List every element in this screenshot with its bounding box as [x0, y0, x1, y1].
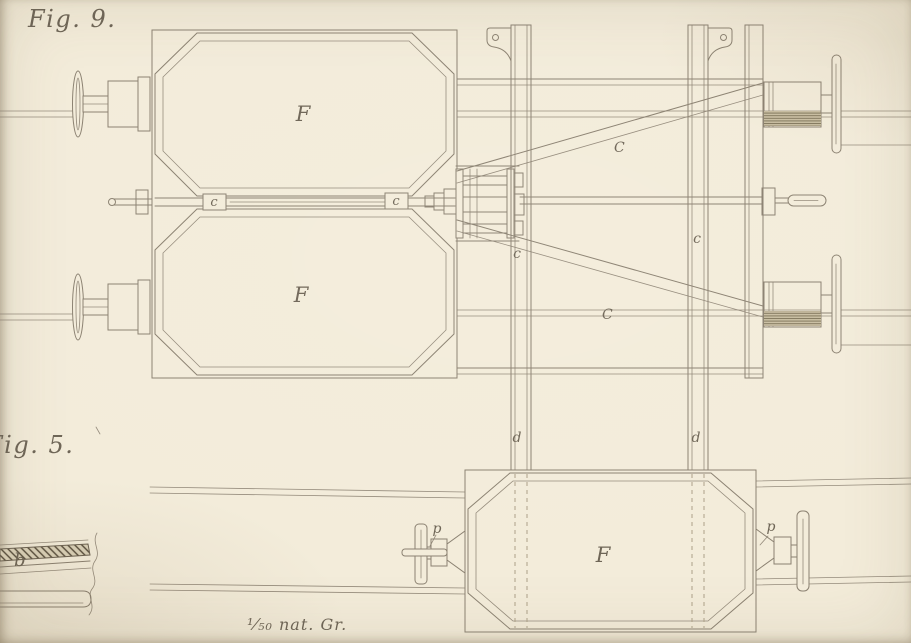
brace-upper-2: [457, 95, 763, 183]
spool-disc: [832, 55, 841, 153]
post-left-d-label: d: [513, 430, 522, 446]
post-right: [688, 25, 708, 470]
post-right-bracket: [708, 28, 732, 61]
lower-wagon-frame: F: [465, 470, 756, 632]
spool-shaft: [821, 295, 832, 313]
post-left-c-label: c: [513, 246, 521, 262]
buffer-spring-housing: [108, 284, 138, 330]
engraving-canvas: Fig. 9. F F: [0, 0, 911, 643]
lower-wagon-label: F: [595, 543, 612, 567]
bracket-bolt-hole: [493, 35, 499, 41]
buffer-spring-housing: [108, 81, 138, 127]
buffer-collar: [138, 280, 150, 334]
scale-note: ¹⁄₅₀ nat. Gr.: [247, 615, 347, 634]
buffer-cone: [447, 531, 465, 573]
rod-clamp-right-label: c: [392, 194, 400, 209]
spool-disc: [832, 255, 841, 353]
fig5-bar-section: b: [0, 533, 97, 615]
fig9-caption: Fig. 9.: [27, 5, 116, 33]
rod-clamp-left-label: c: [210, 195, 218, 210]
frame-bottom-label: F: [293, 283, 310, 307]
spool-right-top: [764, 55, 911, 153]
buffer-block: [774, 537, 791, 564]
frame-outer-rect: [152, 30, 457, 378]
lower-octagon-outer: [468, 473, 753, 629]
p-right-label: p: [767, 519, 776, 535]
buffer-cone: [756, 529, 774, 571]
brace-upper-label: C: [614, 140, 625, 156]
brace-upper-1: [457, 83, 763, 171]
right-truss: C C c c d d: [457, 25, 911, 470]
spool-shadow-band: [764, 111, 821, 126]
brace-lower-2: [457, 231, 763, 317]
buffer-collar: [138, 77, 150, 131]
rod-collar: [762, 188, 775, 215]
buffer-left-bottom: [0, 274, 150, 340]
left-wagon-frame: F F: [152, 30, 457, 378]
crank-handle-tip: [109, 199, 116, 206]
fig5-caption: Fig. 5.: [0, 431, 74, 459]
brace-lower-label: C: [602, 307, 613, 323]
brace-lower-1: [457, 220, 763, 306]
lower-bar: [0, 591, 91, 607]
buffer-left-top: [0, 71, 150, 137]
lower-octagon-inner: [476, 481, 745, 621]
bracket-bolt-hole: [721, 35, 727, 41]
post-right-d-label: d: [692, 430, 701, 446]
p-buffer-left: p: [402, 521, 465, 584]
coupling-plate-left: [456, 169, 463, 238]
buffer-disc: [73, 71, 84, 137]
frame-top-label: F: [295, 102, 312, 126]
post-left-bracket: [487, 28, 511, 61]
spool-right-bottom: [764, 255, 911, 353]
buffer-disc: [73, 274, 84, 340]
end-bar: [745, 25, 763, 378]
screw-coupling: [425, 166, 524, 241]
b-label: b: [14, 550, 26, 571]
rod-right: [520, 188, 826, 215]
crank-left: [109, 190, 153, 214]
crank-collar: [136, 190, 148, 214]
post-right-c-label: c: [693, 231, 701, 247]
spool-shaft: [821, 95, 832, 113]
coupling-spindle: [444, 189, 456, 214]
buffer-cross-pin: [402, 549, 447, 556]
engraving-plate: Fig. 9. F F: [0, 0, 911, 643]
tick-mark: [96, 427, 100, 434]
spool-shadow-band: [764, 311, 821, 326]
p-left-label: p: [433, 521, 442, 537]
lower-frame-rect: [465, 470, 756, 632]
